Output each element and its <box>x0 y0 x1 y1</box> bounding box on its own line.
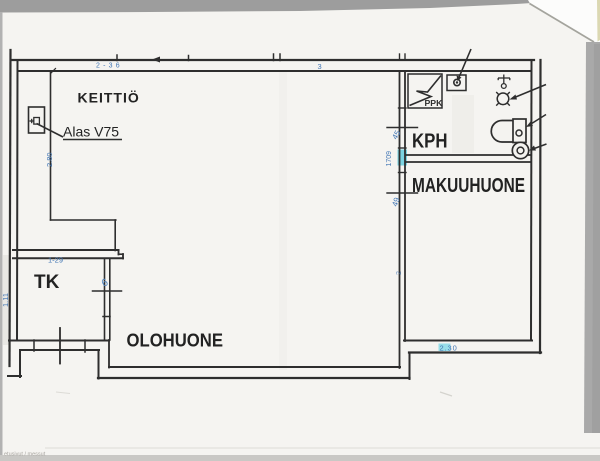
svg-text:OLOHUONE: OLOHUONE <box>127 331 224 351</box>
svg-text:MAKUUHUONE: MAKUUHUONE <box>412 175 525 197</box>
svg-text:2-36: 2-36 <box>96 63 123 70</box>
svg-text:1.11: 1.11 <box>1 293 10 307</box>
svg-text:etusivut / messut: etusivut / messut <box>4 452 46 458</box>
svg-text:1709: 1709 <box>386 151 393 167</box>
svg-text:KEITTIÖ: KEITTIÖ <box>78 90 140 106</box>
svg-text:TK: TK <box>34 272 60 293</box>
svg-text:3: 3 <box>318 62 322 71</box>
svg-text:1-29: 1-29 <box>48 256 63 265</box>
svg-text:KPH: KPH <box>412 131 448 153</box>
svg-text:2.80: 2.80 <box>45 152 54 167</box>
svg-text:PPK: PPK <box>425 98 444 108</box>
svg-text:Alas V75: Alas V75 <box>63 124 119 140</box>
svg-text:2.30: 2.30 <box>440 344 458 353</box>
svg-text:2: 2 <box>396 271 403 275</box>
